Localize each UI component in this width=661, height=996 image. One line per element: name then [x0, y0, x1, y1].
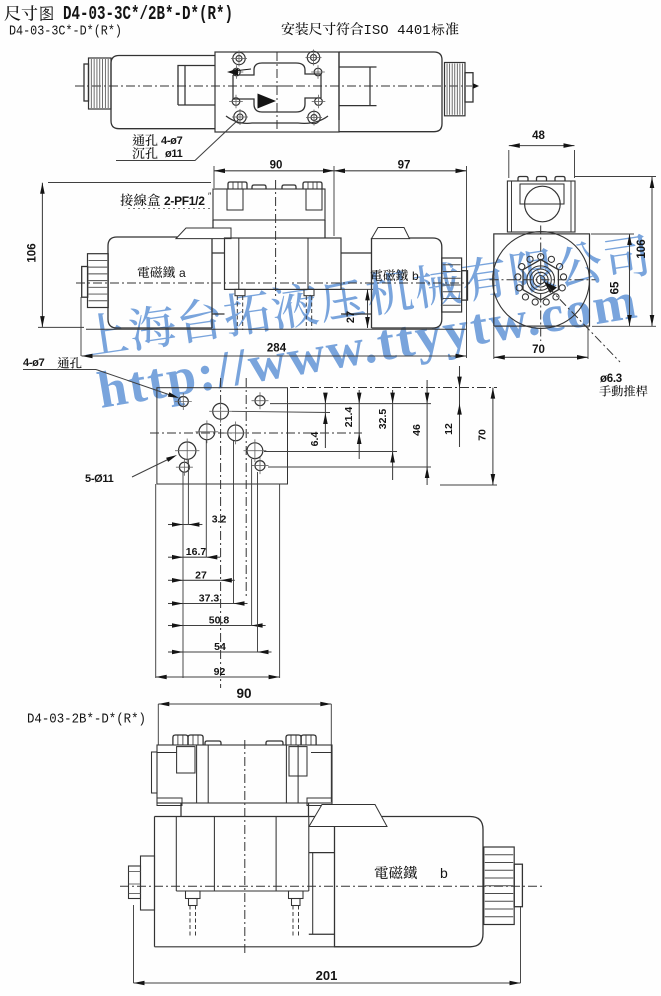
svg-text:284: 284 [267, 343, 287, 355]
svg-text:b: b [412, 269, 419, 283]
svg-text:4-ø7: 4-ø7 [23, 357, 45, 369]
svg-text:5-Ø11: 5-Ø11 [85, 473, 114, 485]
svg-text:6.4: 6.4 [309, 432, 321, 447]
svg-text:D4-03-3C*-D*(R*): D4-03-3C*-D*(R*) [9, 25, 122, 40]
svg-text:ISO 4401: ISO 4401 [364, 23, 431, 39]
svg-text:ø11: ø11 [165, 148, 183, 160]
svg-text:2-PF1/2: 2-PF1/2 [164, 194, 205, 208]
svg-text:48: 48 [532, 130, 545, 142]
svg-text:92: 92 [214, 666, 226, 678]
svg-text:27: 27 [345, 311, 357, 323]
svg-text:21.4: 21.4 [343, 407, 355, 428]
svg-text:90: 90 [236, 686, 251, 701]
svg-text:37.3: 37.3 [199, 593, 220, 605]
svg-text:46: 46 [411, 424, 423, 436]
svg-text:12: 12 [443, 423, 455, 435]
svg-text:4-ø7: 4-ø7 [161, 135, 183, 147]
svg-text:106: 106 [636, 239, 648, 258]
svg-text:16.7: 16.7 [186, 546, 207, 558]
svg-text:D4-03-2B*-D*(R*): D4-03-2B*-D*(R*) [27, 713, 146, 728]
svg-text:ø6.3: ø6.3 [600, 373, 622, 385]
svg-text:201: 201 [316, 968, 338, 983]
svg-text:a: a [179, 266, 186, 280]
svg-text:27: 27 [195, 569, 207, 581]
svg-text:54: 54 [214, 641, 226, 653]
svg-text:106: 106 [27, 243, 39, 262]
svg-text:70: 70 [532, 344, 545, 356]
svg-text:32.5: 32.5 [377, 409, 389, 430]
svg-text:D4-03-3C*/2B*-D*(R*): D4-03-3C*/2B*-D*(R*) [63, 3, 233, 25]
svg-text:b: b [440, 865, 448, 881]
svg-text:70: 70 [477, 429, 489, 441]
svg-text:3.2: 3.2 [212, 514, 227, 526]
svg-text:90: 90 [270, 160, 283, 172]
svg-text:97: 97 [398, 160, 411, 172]
svg-text:50.8: 50.8 [209, 615, 230, 627]
svg-text:65: 65 [610, 281, 622, 294]
